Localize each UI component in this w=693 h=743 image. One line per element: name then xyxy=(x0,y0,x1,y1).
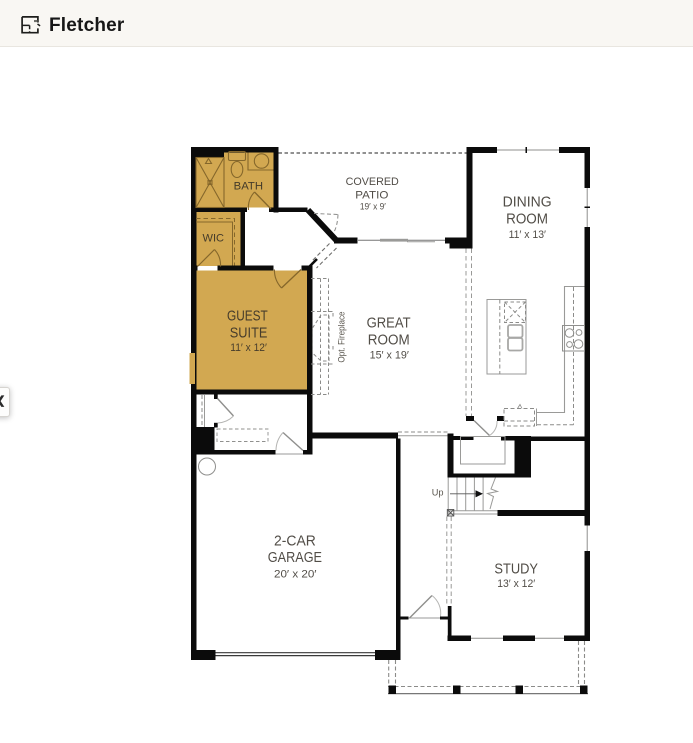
svg-text:11′ x 12′: 11′ x 12′ xyxy=(230,342,267,354)
svg-text:BATH: BATH xyxy=(234,181,263,193)
svg-text:GUEST: GUEST xyxy=(227,309,268,325)
svg-text:COVERED: COVERED xyxy=(346,176,399,188)
svg-text:WIC: WIC xyxy=(203,232,225,244)
svg-text:GARAGE: GARAGE xyxy=(268,550,322,566)
svg-text:STUDY: STUDY xyxy=(494,561,538,577)
svg-text:ROOM: ROOM xyxy=(506,212,548,228)
svg-text:GREAT: GREAT xyxy=(367,316,411,332)
svg-text:ROOM: ROOM xyxy=(368,332,410,348)
svg-text:Up: Up xyxy=(432,487,444,497)
svg-text:20′ x 20′: 20′ x 20′ xyxy=(274,568,317,580)
svg-text:19′ x 9′: 19′ x 9′ xyxy=(360,202,386,212)
svg-text:SUITE: SUITE xyxy=(230,325,268,341)
svg-text:PATIO: PATIO xyxy=(355,190,388,202)
svg-text:11′ x 13′: 11′ x 13′ xyxy=(509,229,546,241)
svg-text:Opt. Fireplace: Opt. Fireplace xyxy=(337,311,347,362)
svg-text:2-CAR: 2-CAR xyxy=(274,533,316,549)
svg-text:DINING: DINING xyxy=(503,195,552,211)
svg-text:15′ x 19′: 15′ x 19′ xyxy=(370,349,409,361)
svg-text:13′ x 12′: 13′ x 12′ xyxy=(497,578,535,590)
